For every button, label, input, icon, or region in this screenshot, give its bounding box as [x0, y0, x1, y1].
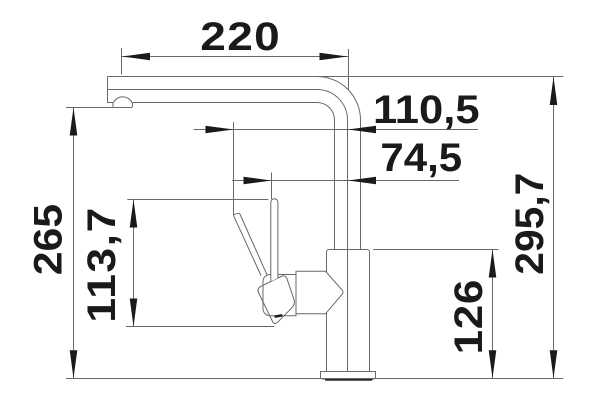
- svg-text:126: 126: [446, 279, 491, 354]
- svg-text:220: 220: [200, 15, 281, 60]
- svg-text:74,5: 74,5: [380, 135, 462, 180]
- svg-text:265: 265: [26, 204, 70, 275]
- svg-text:113,7: 113,7: [79, 206, 123, 322]
- svg-text:110,5: 110,5: [373, 87, 480, 132]
- svg-text:295,7: 295,7: [506, 173, 552, 275]
